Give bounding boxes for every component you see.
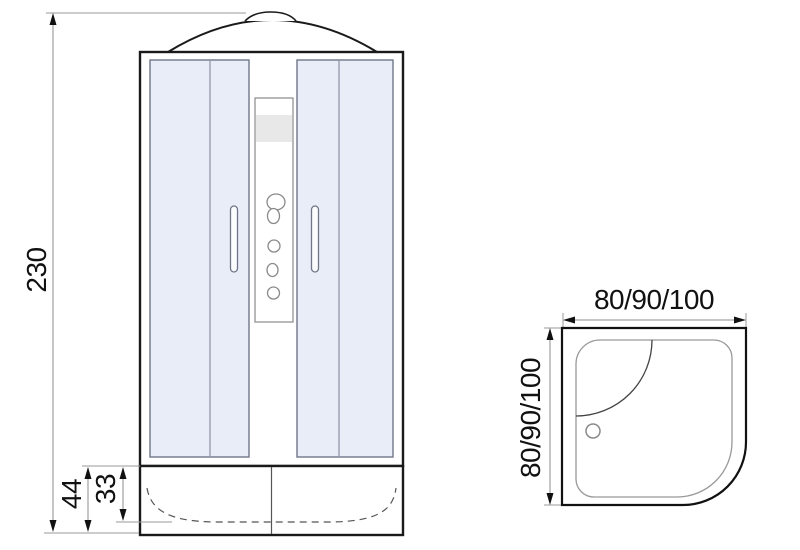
control-knob-1	[268, 240, 280, 252]
dim-label-tray-depth: 80/90/100	[515, 358, 547, 478]
shower-cabin-technical-drawing: 230 44 33 80/90/100 80/90/100	[0, 0, 800, 550]
drawing-linework	[0, 0, 800, 550]
arrow-230-top	[50, 13, 57, 25]
control-knob-2	[267, 264, 278, 277]
arrow-depth-bottom	[547, 493, 554, 505]
door-handle-left	[231, 206, 238, 272]
dome-top-cap	[245, 12, 296, 21]
arrow-33-bottom	[120, 509, 127, 521]
shower-panel-band	[256, 115, 292, 142]
arrow-44-bottom	[85, 520, 92, 532]
dim-label-basin-depth: 33	[90, 474, 122, 504]
arrow-width-right	[734, 317, 746, 324]
dim-label-tray-height: 44	[56, 479, 88, 509]
door-handle-right	[312, 206, 319, 272]
mixer-knob-lower	[268, 209, 280, 224]
dome-roof-arc	[168, 20, 377, 52]
mixer-knob-upper	[267, 194, 285, 210]
top-view	[544, 313, 746, 505]
front-view	[44, 12, 403, 535]
dim-label-tray-width: 80/90/100	[594, 284, 714, 316]
control-knob-3	[268, 287, 280, 299]
drain-hole	[586, 424, 600, 438]
arrow-230-bottom	[50, 520, 57, 532]
arrow-width-left	[563, 317, 575, 324]
arrow-depth-top	[547, 328, 554, 340]
dim-label-overall-height: 230	[21, 247, 53, 292]
